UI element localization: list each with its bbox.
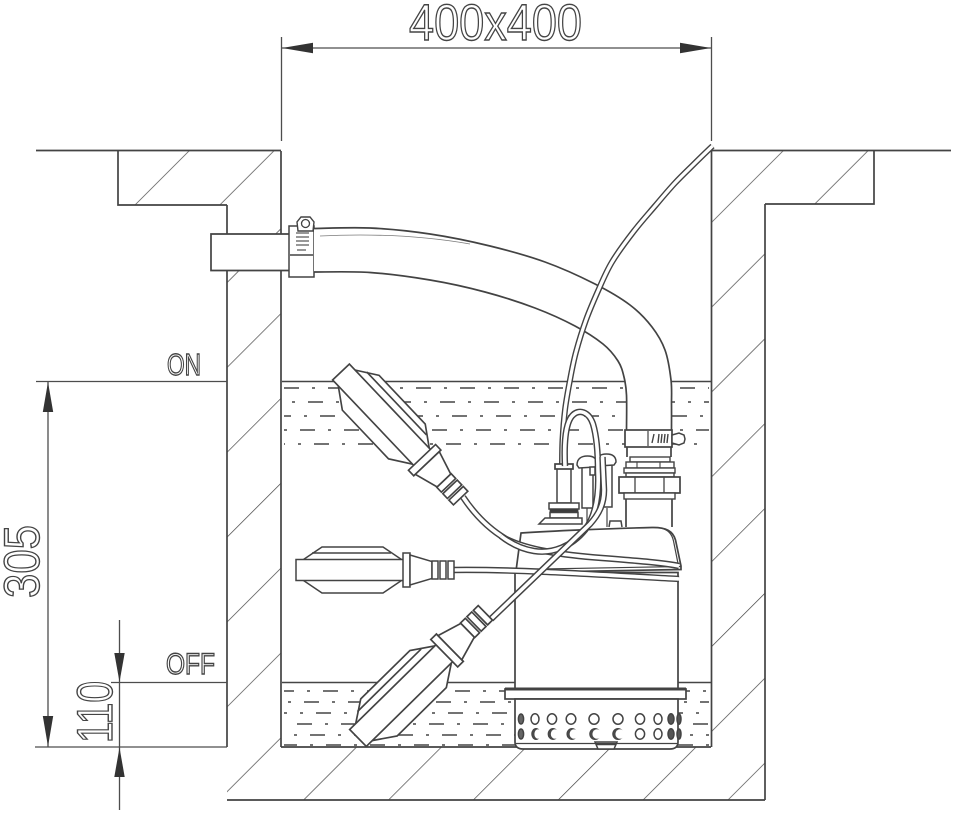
svg-text:305: 305 [0,525,50,598]
svg-text:ON: ON [167,347,201,382]
svg-text:OFF: OFF [166,648,215,681]
svg-text:110: 110 [67,681,123,743]
svg-text:400x400: 400x400 [409,0,582,51]
